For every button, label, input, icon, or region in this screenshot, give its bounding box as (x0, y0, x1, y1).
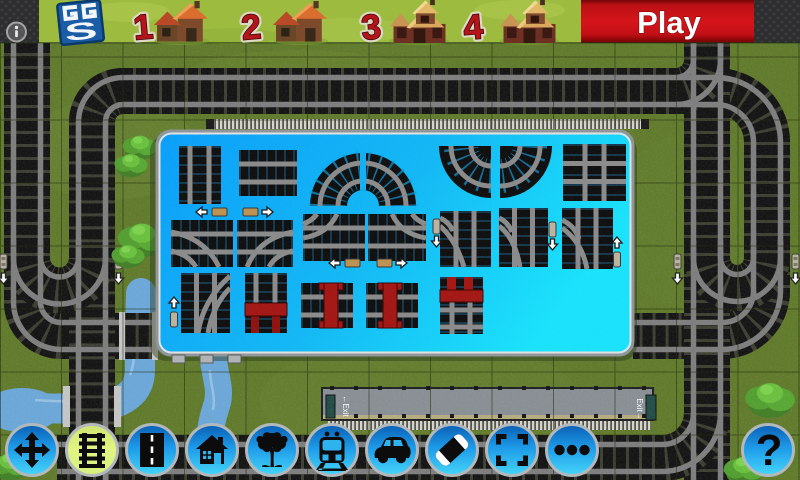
svg-text:4: 4 (462, 7, 485, 48)
svg-text:1: 1 (132, 7, 155, 48)
svg-text:2: 2 (240, 7, 263, 48)
svg-text:S: S (63, 17, 98, 47)
svg-text:3: 3 (360, 7, 383, 48)
svg-text:Play: Play (637, 5, 702, 40)
svg-text:?: ? (756, 426, 783, 475)
